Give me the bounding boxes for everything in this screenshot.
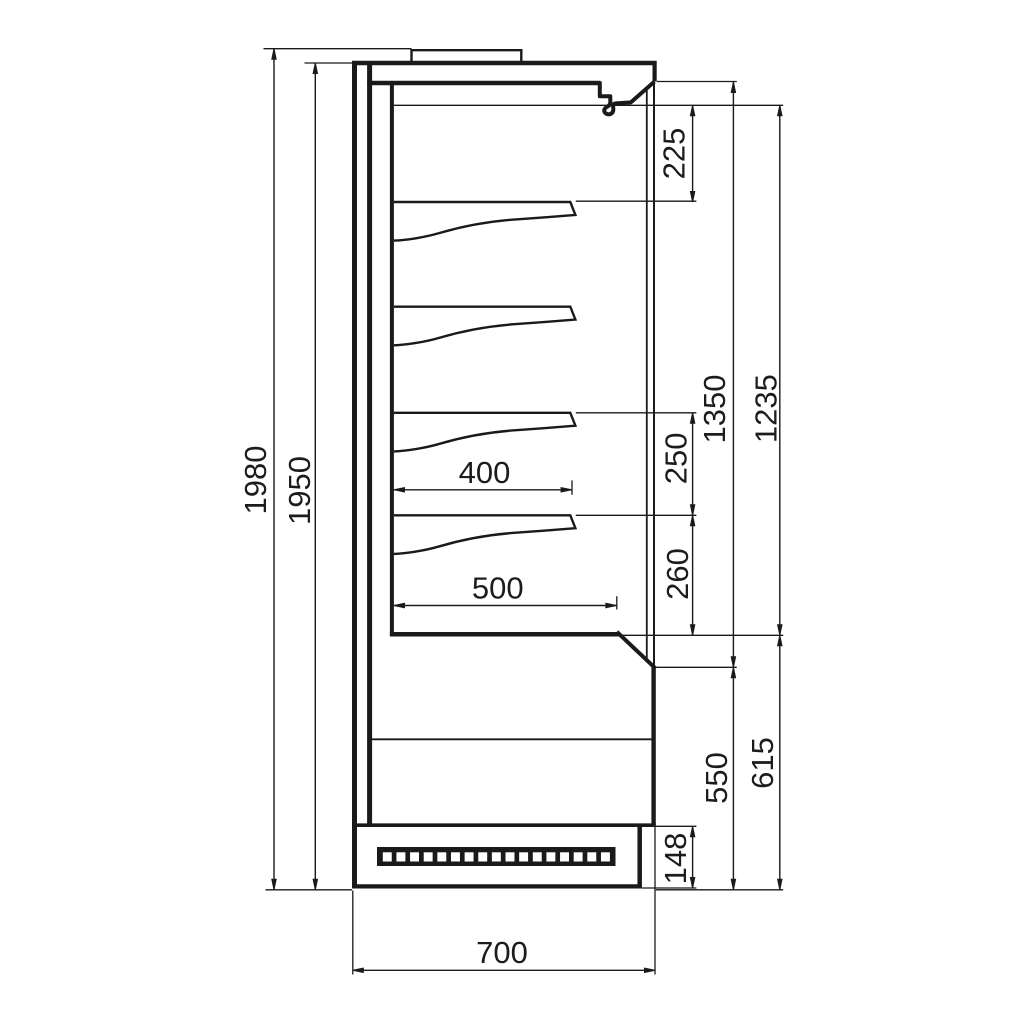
svg-text:1950: 1950 xyxy=(282,456,317,525)
svg-text:225: 225 xyxy=(657,128,692,180)
svg-text:1235: 1235 xyxy=(749,374,784,443)
svg-text:550: 550 xyxy=(699,752,734,804)
svg-text:500: 500 xyxy=(472,571,524,606)
svg-text:148: 148 xyxy=(658,833,693,885)
svg-text:700: 700 xyxy=(476,935,528,970)
svg-text:400: 400 xyxy=(459,455,511,490)
svg-text:615: 615 xyxy=(745,737,780,789)
svg-text:250: 250 xyxy=(659,433,694,485)
svg-text:260: 260 xyxy=(660,548,695,600)
svg-text:1980: 1980 xyxy=(238,446,273,515)
svg-text:1350: 1350 xyxy=(697,375,732,444)
